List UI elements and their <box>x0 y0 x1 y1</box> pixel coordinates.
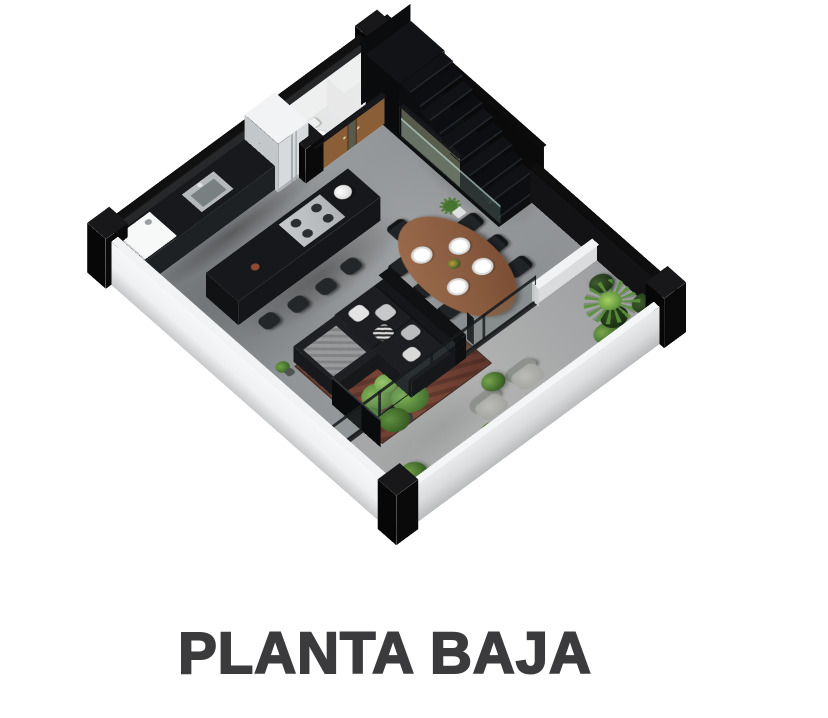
floor-plan-page: PLANTA BAJA <box>0 0 828 718</box>
page-title: PLANTA BAJA <box>178 620 592 687</box>
